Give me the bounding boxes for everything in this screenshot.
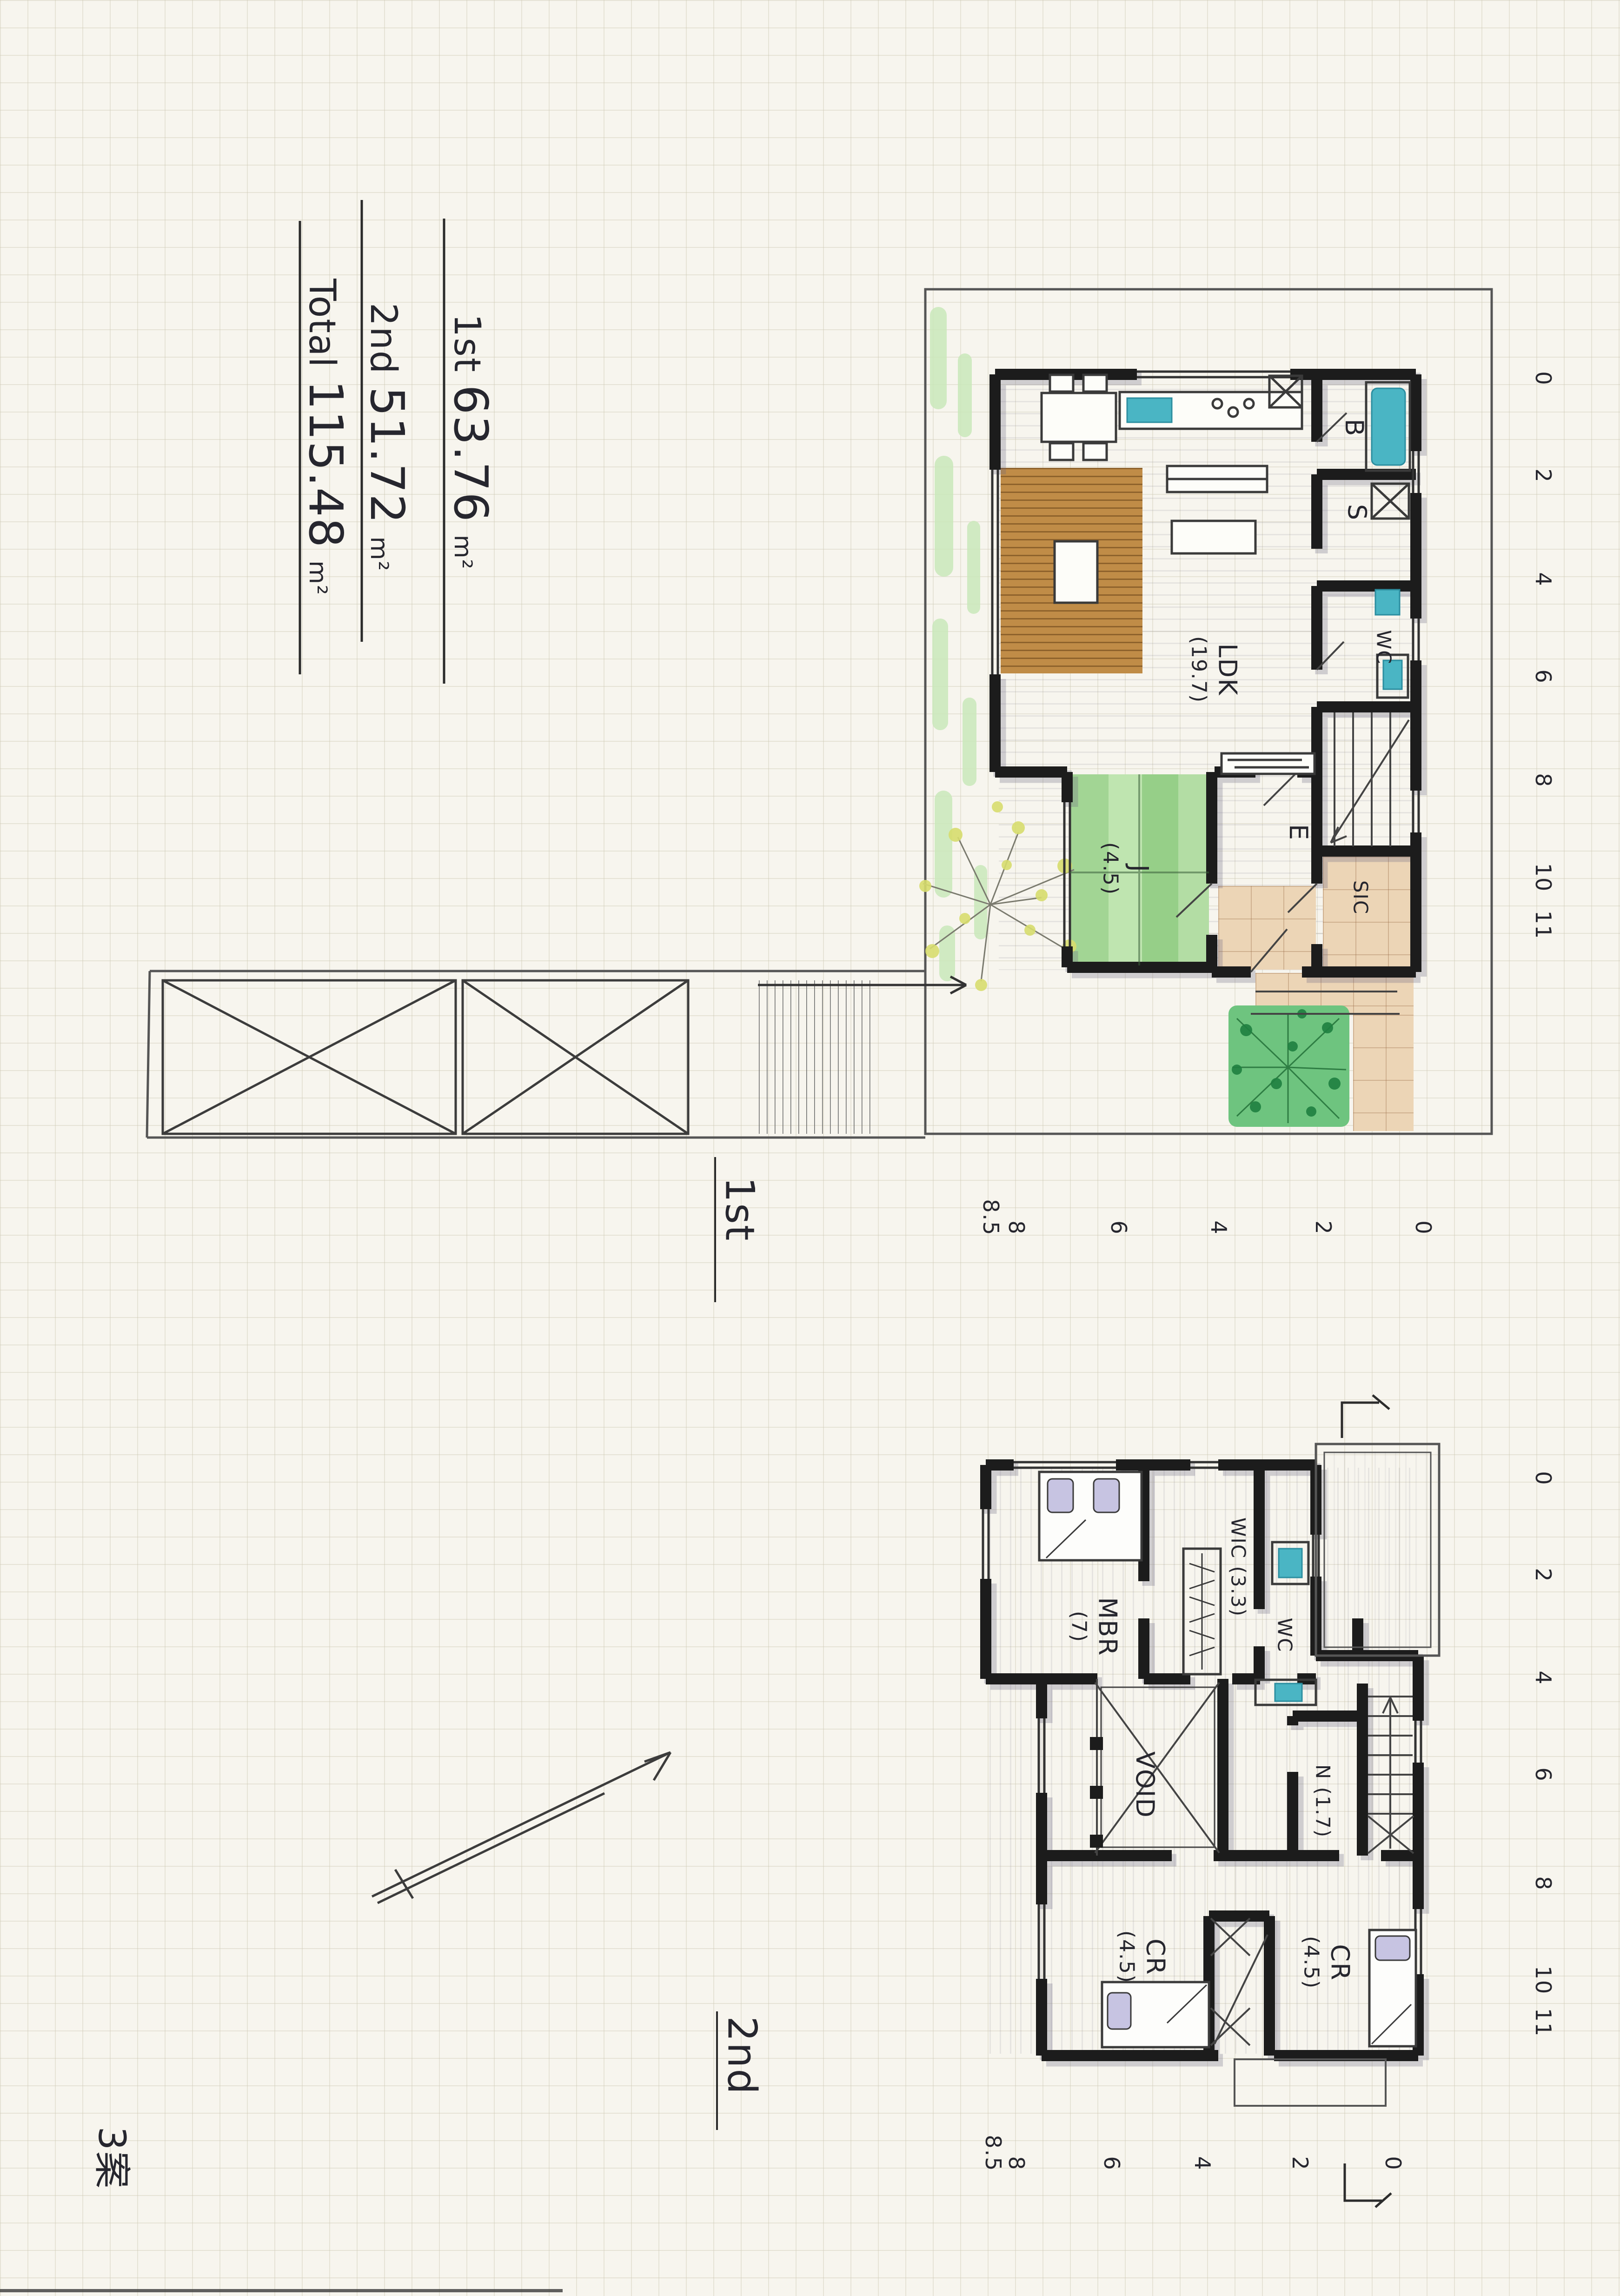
- f1-ruler-bottom-4: 2: [1311, 1220, 1335, 1235]
- floor-plan-sheet: { "sheet": { "area_summary": [ {"label":…: [0, 0, 1620, 2296]
- room-label-cr1: CR (4.5): [1115, 1930, 1169, 1983]
- linework-layer: [0, 0, 1620, 2296]
- washstand: [1372, 484, 1409, 519]
- f1-ruler-bottom-5: 0: [1411, 1220, 1434, 1235]
- area-unit: m²: [366, 537, 392, 572]
- f1-ruler-bottom-2: 6: [1107, 1220, 1130, 1235]
- room-label-wc1: WC: [1373, 630, 1394, 665]
- room-label-e: E: [1285, 824, 1312, 841]
- scan-edge-line: [0, 2289, 563, 2292]
- area-summary-row-total: Total 115.48 m²: [300, 279, 351, 596]
- room-label-sic: SIC: [1350, 880, 1371, 915]
- f2-ruler-right-0: 0: [1531, 1471, 1554, 1485]
- room-label-ldk: LDK (19.7): [1187, 636, 1241, 703]
- tv-board: [1222, 753, 1315, 774]
- room-label-b: B: [1341, 419, 1368, 437]
- f2-ruler-bottom-2: 6: [1100, 2156, 1123, 2170]
- f1-ruler-right-2: 4: [1531, 572, 1554, 586]
- bathtub: [1372, 388, 1405, 465]
- f2-ruler-right-5: 10: [1531, 1966, 1554, 1995]
- floor1-name: 1st: [718, 1177, 761, 1241]
- room-label-n: N (1.7): [1312, 1764, 1333, 1838]
- area-value: 63.76: [445, 385, 496, 523]
- f1-ruler-bottom-1: 8: [1004, 1220, 1028, 1235]
- area-value: 51.72: [362, 386, 412, 524]
- f2-ruler-right-6: 11: [1531, 2008, 1554, 2037]
- f2-ruler-right-2: 4: [1531, 1670, 1554, 1685]
- room-label-mbr: MBR (7): [1067, 1597, 1121, 1656]
- f1-ruler-bottom-0: 8.5: [979, 1199, 1002, 1236]
- f1-ruler-right-3: 6: [1531, 669, 1554, 684]
- deck-table: [1055, 541, 1097, 603]
- area-label: 1st: [447, 314, 486, 373]
- f2-ruler-bottom-4: 2: [1288, 2156, 1311, 2170]
- balcony: [1316, 1444, 1439, 1656]
- f2-ruler-bottom-3: 4: [1190, 2156, 1214, 2170]
- f1-ruler-right-6: 11: [1531, 911, 1554, 940]
- area-value: 115.48: [300, 380, 351, 548]
- f2-ruler-bottom-0: 8.5: [981, 2135, 1004, 2171]
- room-label-j: J (4.5): [1098, 842, 1153, 895]
- room-label-s: S: [1343, 504, 1370, 521]
- f1-ruler-right-0: 0: [1531, 371, 1554, 386]
- f2-ruler-bottom-5: 0: [1381, 2156, 1404, 2170]
- room-label-void: VOID: [1131, 1751, 1158, 1818]
- room-label-cr2: CR (4.5): [1299, 1936, 1354, 1989]
- wc-basin: [1375, 590, 1400, 615]
- room-label-wic: WIC (3.3): [1228, 1517, 1248, 1617]
- room-label-wc2: WC: [1274, 1618, 1295, 1653]
- area-unit: m²: [450, 535, 476, 570]
- f1-ruler-bottom-3: 4: [1207, 1220, 1230, 1235]
- area-summary-row-2nd: 2nd 51.72 m²: [362, 303, 412, 572]
- area-label: Total: [302, 279, 341, 368]
- wic-closet: [1183, 1549, 1221, 1674]
- floor2-name: 2nd: [720, 2016, 764, 2095]
- area-summary-row-1st: 1st 63.76 m²: [445, 314, 496, 570]
- f1-ruler-right-4: 8: [1531, 773, 1554, 787]
- f2-ruler-right-4: 8: [1531, 1876, 1554, 1890]
- walkway-steps: [756, 980, 874, 1134]
- bush-icon: [1232, 1009, 1346, 1123]
- driveway-parking: [163, 980, 688, 1134]
- f1-ruler-right-1: 2: [1531, 468, 1554, 483]
- basin2: [1275, 1684, 1302, 1701]
- toilet2: [1279, 1549, 1302, 1577]
- f2-ruler-bottom-1: 8: [1004, 2156, 1028, 2170]
- f2-ruler-right-1: 2: [1531, 1568, 1554, 1582]
- area-label: 2nd: [364, 303, 403, 375]
- floor2-stairs: [1368, 1697, 1414, 1853]
- sheet-note: 3案: [92, 2127, 132, 2190]
- kitchen-sink: [1127, 398, 1172, 422]
- floor1-stairs: [1331, 712, 1409, 846]
- f2-ruler-right-3: 6: [1531, 1767, 1554, 1782]
- north-arrow: [372, 1752, 671, 1903]
- f1-ruler-right-5: 10: [1531, 863, 1554, 892]
- tree-icon: [919, 801, 1076, 991]
- area-unit: m²: [305, 560, 331, 596]
